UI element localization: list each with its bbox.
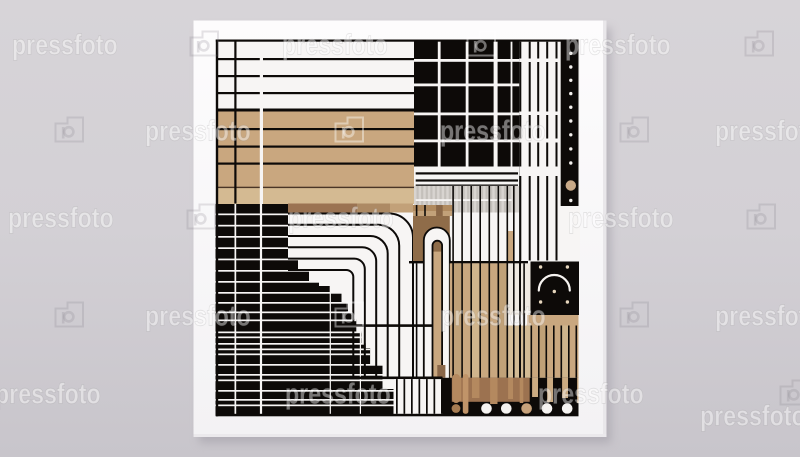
svg-text:pressfoto: pressfoto bbox=[285, 377, 391, 410]
svg-text:pressfoto: pressfoto bbox=[145, 299, 251, 332]
svg-text:pressfoto: pressfoto bbox=[8, 201, 114, 234]
svg-text:pressfoto: pressfoto bbox=[568, 201, 674, 234]
svg-text:pressfoto: pressfoto bbox=[715, 114, 800, 147]
svg-text:pressfoto: pressfoto bbox=[12, 28, 118, 61]
svg-text:pressfoto: pressfoto bbox=[440, 299, 546, 332]
svg-text:pressfoto: pressfoto bbox=[700, 399, 800, 432]
svg-text:pressfoto: pressfoto bbox=[145, 114, 251, 147]
svg-text:pressfoto: pressfoto bbox=[282, 28, 388, 61]
svg-text:pressfoto: pressfoto bbox=[538, 377, 644, 410]
svg-text:pressfoto: pressfoto bbox=[715, 299, 800, 332]
svg-text:pressfoto: pressfoto bbox=[0, 377, 101, 410]
svg-text:pressfoto: pressfoto bbox=[288, 201, 394, 234]
svg-text:pressfoto: pressfoto bbox=[440, 114, 546, 147]
svg-text:pressfoto: pressfoto bbox=[565, 28, 671, 61]
